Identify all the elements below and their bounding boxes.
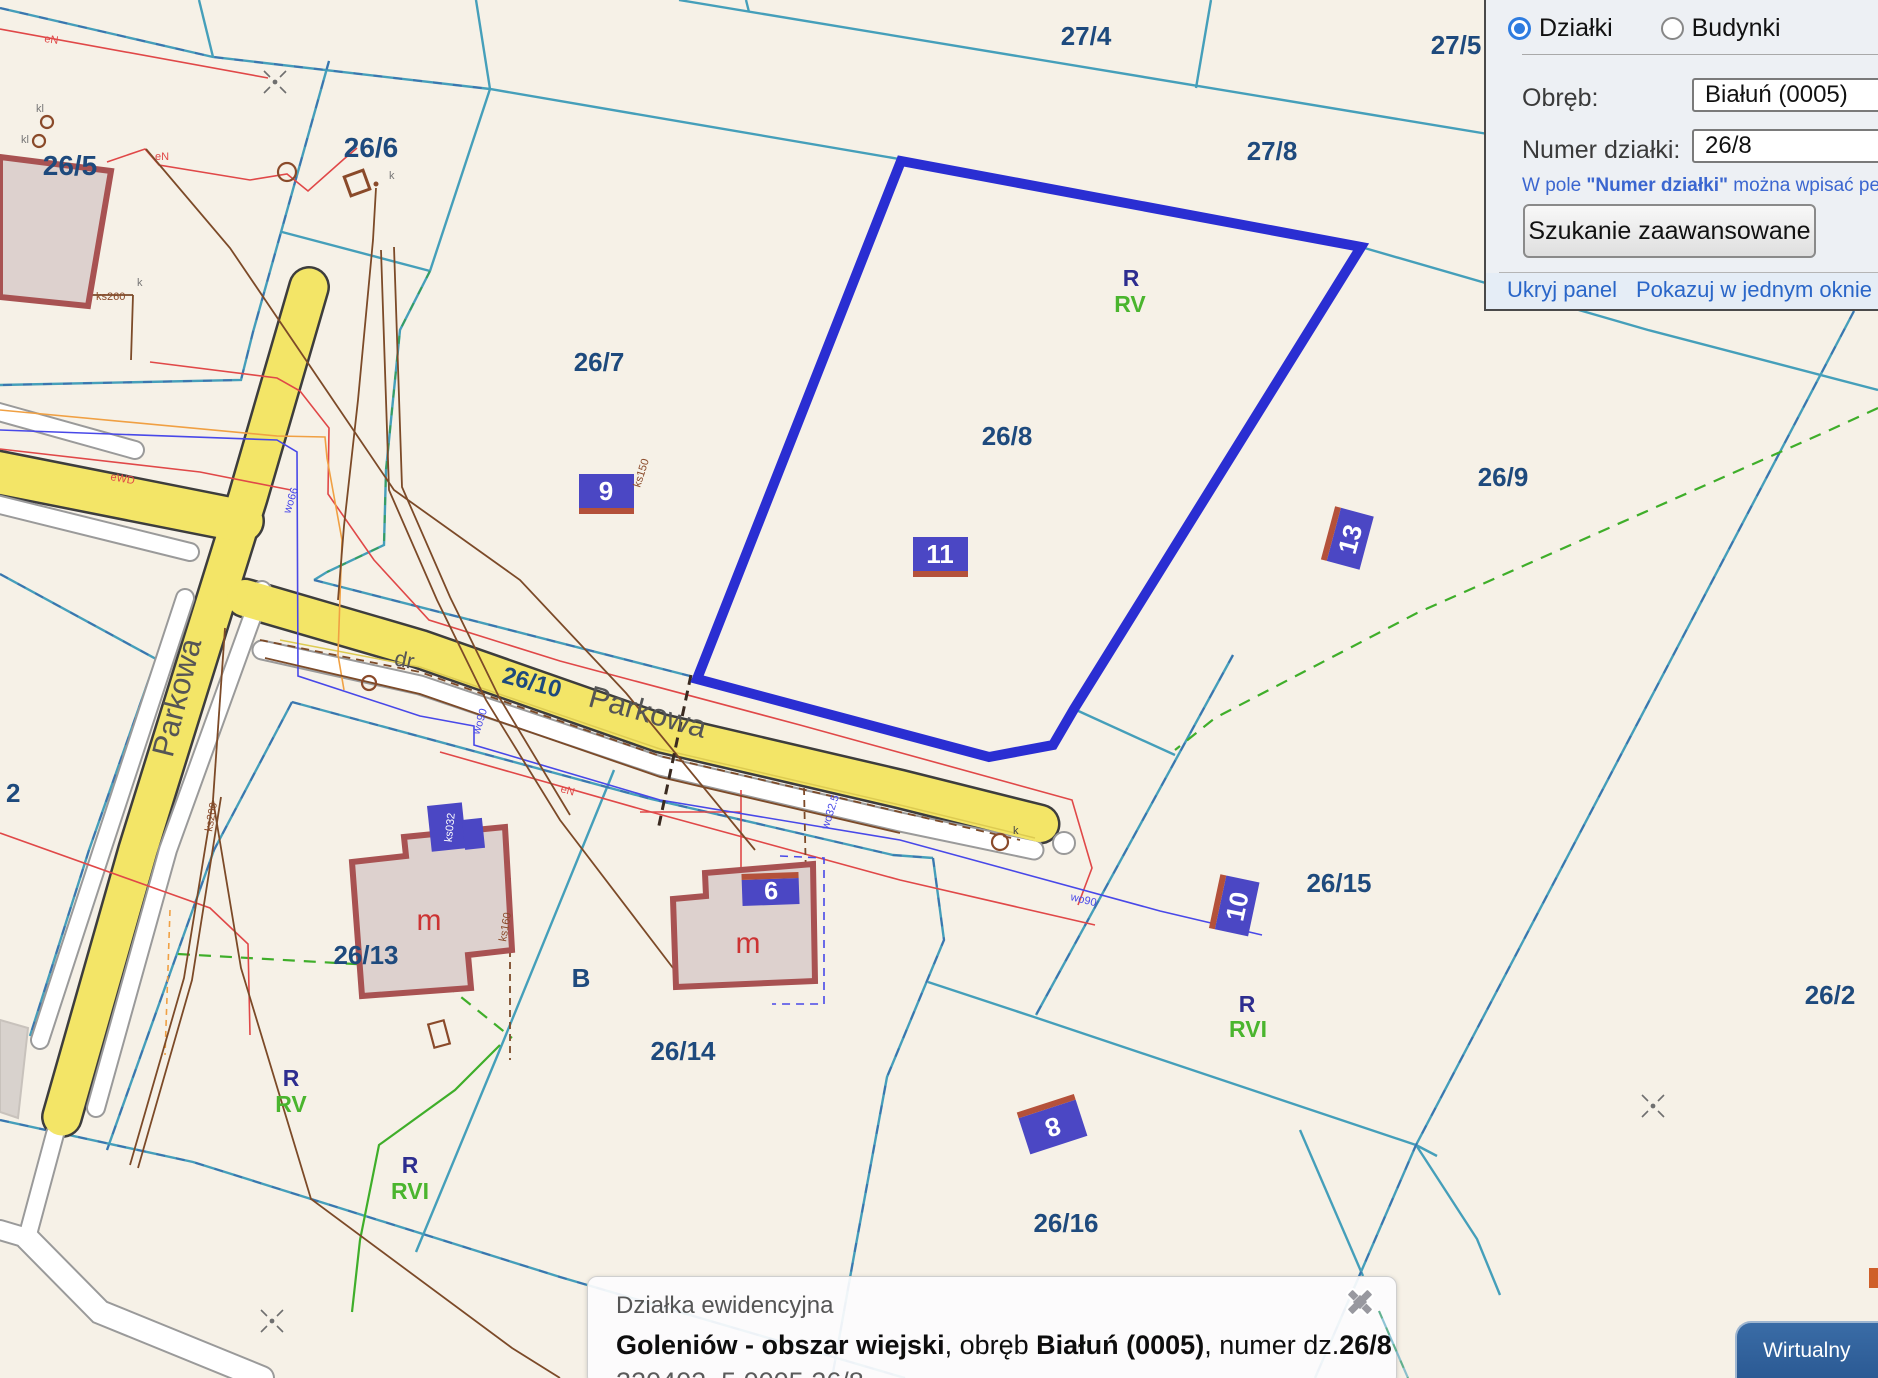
svg-text:26/16: 26/16 [1033,1208,1098,1238]
svg-text:RVI: RVI [1229,1016,1267,1042]
svg-text:9: 9 [599,476,613,506]
svg-text:m: m [417,904,442,937]
svg-text:26/9: 26/9 [1478,462,1529,492]
svg-text:wo90: wo90 [1068,891,1097,909]
svg-text:RV: RV [1114,291,1146,317]
svg-text:26/5: 26/5 [43,150,98,181]
svg-text:26/14: 26/14 [650,1036,716,1066]
svg-text:27/4: 27/4 [1061,21,1112,51]
svg-text:R: R [1123,265,1140,291]
svg-text:RVI: RVI [391,1178,429,1204]
svg-text:R: R [402,1152,419,1178]
svg-text:26/2: 26/2 [1805,980,1856,1010]
svg-text:eN: eN [44,33,60,47]
svg-text:10: 10 [1219,889,1254,924]
svg-text:eN: eN [559,783,576,798]
svg-text:R: R [1239,991,1256,1017]
svg-text:26/15: 26/15 [1306,868,1371,898]
svg-text:ks150: ks150 [631,457,651,489]
svg-text:dr: dr [392,645,416,674]
svg-text:RV: RV [275,1091,307,1117]
svg-text:27/8: 27/8 [1247,136,1298,166]
svg-text:11: 11 [926,539,954,569]
svg-text:kl: kl [36,103,44,115]
svg-text:26/7: 26/7 [574,347,625,377]
svg-text:9: 9 [764,876,779,904]
svg-text:26/6: 26/6 [344,132,399,163]
svg-text:m: m [736,927,761,960]
svg-text:26/8: 26/8 [982,421,1033,451]
svg-text:k: k [137,277,143,289]
svg-text:27/5: 27/5 [1431,30,1482,60]
svg-text:B: B [572,963,591,993]
svg-text:ks260: ks260 [96,291,125,303]
svg-text:26/13: 26/13 [333,940,398,970]
svg-text:k: k [389,170,395,182]
svg-text:R: R [283,1065,300,1091]
svg-text:kl: kl [21,134,29,146]
svg-text:eN: eN [155,151,169,163]
svg-text:k: k [1013,825,1019,837]
svg-text:2: 2 [6,778,20,808]
